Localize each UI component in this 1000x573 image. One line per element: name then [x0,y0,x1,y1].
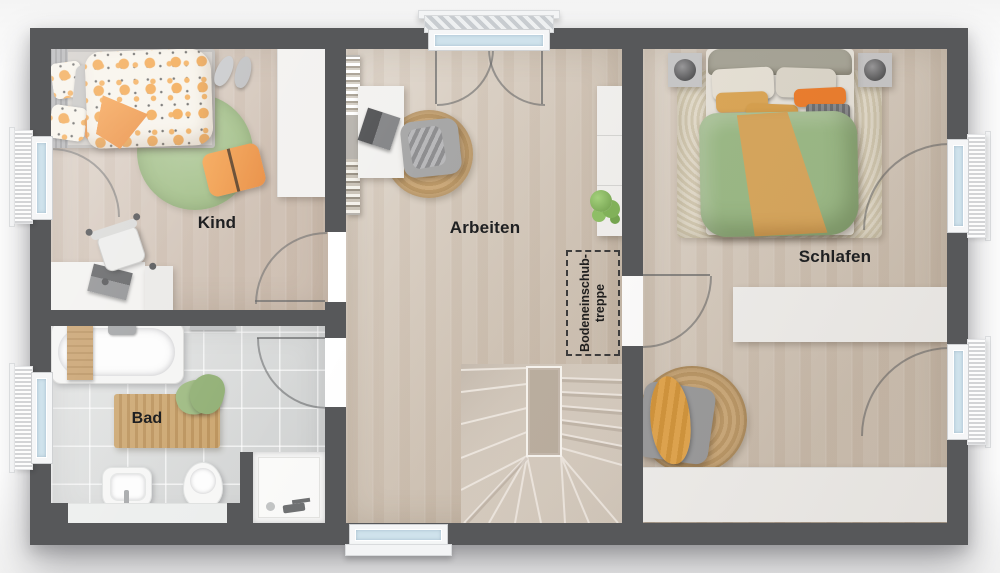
schlafen-duvet [699,111,859,238]
schlafen-lamp-right [864,59,886,81]
bad-vanity-ledge [68,503,227,524]
kind-desk-return [145,266,173,310]
arbeiten-laptop [358,108,401,151]
schlafen-pouf [635,380,717,465]
bad-green-towel [176,374,226,422]
bad-shower-drain [266,502,275,511]
schlafen-nightstand-left [668,53,702,87]
schlafen-pouf-blanket [649,376,692,465]
staircase-drawing [461,364,622,523]
room-label-arbeiten: Arbeiten [420,218,550,238]
room-label-kind: Kind [185,213,249,233]
window-stairs-glass [355,529,442,541]
arbeiten-armchair-cushion [407,125,447,170]
radiator-schlafen-upper [967,134,986,238]
wall-hall-schlafen-upper [622,49,643,276]
wall-vanity-stub-right [227,503,243,523]
wall-left [30,28,51,545]
french-door-leaf-right [541,49,543,104]
schlafen-lamp-left [674,59,696,81]
radiator-schlafen-lower [967,339,986,445]
attic-hatch-label: Bodeneinschub- treppe [578,254,608,352]
arbeiten-desk [358,86,404,178]
wall-bottom [30,523,968,545]
schlafen-nightstand-right [858,53,892,87]
window-schlafen-lower-glass [953,350,964,434]
wall-kind-arbeiten-upper [325,49,346,232]
window-schlafen-upper-glass [953,145,964,227]
kind-wardrobe [277,49,326,197]
french-door-leaf-left [435,49,437,104]
window-kind-glass [36,142,47,214]
wall-bad-hall-lower [325,407,346,523]
arbeiten-armchair [399,117,463,179]
door-leaf-bad [257,337,325,339]
kind-slippers [213,52,259,98]
window-bad-glass [36,378,47,458]
floor-plan: Kind Arbeiten Bodeneinschub- treppe [0,0,1000,573]
wall-vanity-stub-left [51,503,68,523]
staircase [461,364,622,523]
room-label-bad: Bad [122,410,172,428]
bad-toilet [183,462,223,509]
kind-pillow-dotted-2 [48,104,88,143]
window-stairs-sill [345,544,452,556]
bad-shower [253,452,325,523]
wall-hall-schlafen-lower [622,346,643,523]
door-leaf-kind [255,300,325,302]
attic-hatch-marker: Bodeneinschub- treppe [566,250,620,356]
door-leaf-schlafen [643,274,710,276]
schlafen-wardrobe [641,467,947,522]
room-label-schlafen: Schlafen [770,247,900,267]
bad-bath-caddy [67,324,93,380]
schlafen-bed [706,49,854,235]
wall-right [947,28,968,545]
arbeiten-plant [586,188,624,232]
french-window-glass [434,34,544,47]
bad-towel-rail [190,326,236,330]
bad-bathtub [51,322,184,384]
schlafen-dresser [733,287,947,342]
schlafen-duvet-band [699,111,859,238]
wall-bad-hall-stub [325,326,346,338]
wall-kind-bad [51,310,346,326]
kind-bed [50,49,215,148]
